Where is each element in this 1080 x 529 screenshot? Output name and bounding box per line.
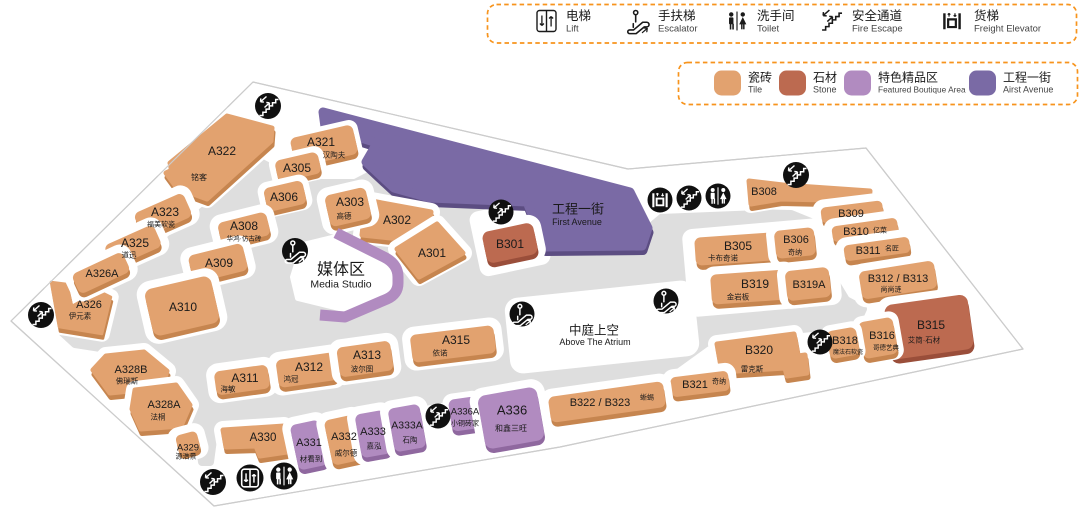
svg-text:A323: A323: [151, 205, 179, 219]
svg-text:A313: A313: [353, 348, 381, 362]
svg-text:A332: A332: [331, 431, 357, 443]
svg-text:汉陶夫: 汉陶夫: [323, 150, 346, 160]
svg-text:A336: A336: [497, 403, 527, 418]
svg-text:A302: A302: [383, 213, 411, 227]
svg-text:B310: B310: [843, 226, 869, 238]
svg-text:B315: B315: [917, 318, 945, 332]
svg-text:小铜砖家: 小铜砖家: [451, 418, 479, 427]
svg-text:金岩板: 金岩板: [727, 292, 750, 302]
svg-text:B319: B319: [741, 277, 769, 291]
svg-text:福美软瓷: 福美软瓷: [147, 219, 175, 228]
svg-text:卡布奇诺: 卡布奇诺: [708, 253, 738, 263]
svg-text:依诺: 依诺: [433, 348, 448, 358]
svg-text:B309: B309: [838, 208, 864, 220]
svg-text:Escalator: Escalator: [658, 24, 698, 35]
svg-text:A310: A310: [169, 300, 197, 314]
svg-text:B312 / B313: B312 / B313: [868, 273, 929, 285]
svg-text:A312: A312: [295, 360, 323, 374]
svg-text:海敏: 海敏: [221, 384, 236, 394]
svg-text:工程一街: 工程一街: [1003, 70, 1051, 85]
svg-text:Lift: Lift: [566, 24, 579, 35]
svg-text:魔法石软瓷: 魔法石软瓷: [833, 348, 863, 356]
svg-text:法桐: 法桐: [151, 412, 166, 422]
svg-text:鸿冠: 鸿冠: [284, 374, 299, 384]
svg-text:尚尚涟: 尚尚涟: [881, 284, 902, 293]
svg-text:波尔图: 波尔图: [351, 364, 374, 374]
svg-text:Above The Atrium: Above The Atrium: [559, 337, 630, 347]
svg-text:亿菜: 亿菜: [873, 225, 887, 234]
svg-text:和鑫三旺: 和鑫三旺: [495, 423, 527, 433]
svg-text:A301: A301: [418, 246, 446, 260]
svg-text:石陶: 石陶: [403, 435, 418, 445]
svg-text:B311: B311: [856, 245, 881, 257]
svg-text:B308: B308: [751, 186, 777, 198]
svg-text:A326: A326: [76, 299, 102, 311]
svg-text:A306: A306: [270, 190, 298, 204]
svg-text:Featured Boutique Area: Featured Boutique Area: [878, 85, 966, 95]
svg-text:Toilet: Toilet: [757, 24, 780, 35]
svg-text:A322: A322: [208, 144, 236, 158]
svg-text:B321: B321: [682, 379, 708, 391]
svg-text:A305: A305: [283, 161, 311, 175]
svg-text:佛瑞斯: 佛瑞斯: [116, 376, 139, 386]
svg-text:Airst Avenue: Airst Avenue: [1003, 85, 1053, 95]
svg-text:B318: B318: [832, 335, 858, 347]
svg-text:A328A: A328A: [147, 399, 181, 411]
svg-text:A333: A333: [360, 426, 386, 438]
svg-text:蜥蜴: 蜥蜴: [640, 392, 654, 401]
svg-text:B301: B301: [496, 237, 524, 251]
svg-text:A336A: A336A: [451, 406, 480, 417]
svg-text:媒体区: 媒体区: [317, 261, 365, 279]
svg-text:道迅: 道迅: [122, 250, 137, 260]
svg-text:石材: 石材: [813, 71, 837, 85]
svg-text:A329: A329: [177, 442, 199, 453]
svg-text:铭客: 铭客: [191, 172, 207, 182]
svg-text:A328B: A328B: [114, 364, 147, 376]
svg-text:材看到: 材看到: [300, 454, 323, 464]
svg-text:哥德艺典: 哥德艺典: [873, 342, 900, 351]
svg-text:电梯: 电梯: [566, 9, 591, 23]
svg-text:洗手间: 洗手间: [757, 9, 795, 23]
svg-text:华鸿·仿古砖: 华鸿·仿古砖: [227, 233, 262, 242]
svg-text:源浩景: 源浩景: [176, 451, 197, 460]
svg-text:A311: A311: [231, 371, 258, 385]
svg-text:A308: A308: [230, 219, 258, 233]
svg-text:奇纳: 奇纳: [788, 247, 802, 256]
svg-text:手扶梯: 手扶梯: [658, 8, 696, 23]
svg-text:伊元素: 伊元素: [69, 311, 92, 321]
svg-text:A331: A331: [296, 437, 322, 449]
svg-text:中庭上空: 中庭上空: [569, 322, 619, 337]
svg-text:First Avenue: First Avenue: [552, 217, 602, 227]
svg-text:A333A: A333A: [391, 420, 423, 432]
svg-text:Media Studio: Media Studio: [310, 279, 371, 291]
svg-text:A326A: A326A: [85, 268, 119, 280]
svg-text:A321: A321: [307, 135, 335, 149]
svg-text:A325: A325: [121, 236, 149, 250]
svg-text:A330: A330: [250, 432, 277, 444]
svg-text:高德: 高德: [337, 211, 352, 221]
svg-text:Fire Escape: Fire Escape: [852, 24, 903, 35]
svg-text:威尔德: 威尔德: [335, 448, 358, 458]
svg-text:A309: A309: [205, 256, 233, 270]
svg-text:Freight Elevator: Freight Elevator: [974, 24, 1041, 35]
svg-text:名匠: 名匠: [885, 243, 899, 252]
svg-text:工程一街: 工程一街: [552, 202, 604, 217]
svg-text:B316: B316: [869, 330, 895, 342]
svg-text:B319A: B319A: [792, 279, 826, 291]
svg-text:安全通道: 安全通道: [852, 8, 903, 23]
svg-text:B322 / B323: B322 / B323: [570, 397, 631, 409]
svg-text:雷克斯: 雷克斯: [741, 364, 764, 374]
svg-text:瓷砖: 瓷砖: [748, 70, 772, 85]
svg-text:A315: A315: [442, 333, 470, 347]
svg-text:奇纳: 奇纳: [712, 376, 726, 385]
svg-text:Stone: Stone: [813, 85, 837, 95]
svg-text:艾简·石材: 艾简·石材: [908, 335, 941, 345]
svg-text:A303: A303: [336, 195, 364, 209]
svg-text:特色精品区: 特色精品区: [878, 70, 938, 85]
svg-text:货梯: 货梯: [974, 8, 999, 23]
svg-text:Tile: Tile: [748, 85, 762, 95]
svg-text:B305: B305: [724, 239, 752, 253]
svg-text:嘉泓: 嘉泓: [367, 441, 382, 451]
svg-text:B320: B320: [745, 343, 773, 357]
svg-text:B306: B306: [783, 234, 809, 246]
